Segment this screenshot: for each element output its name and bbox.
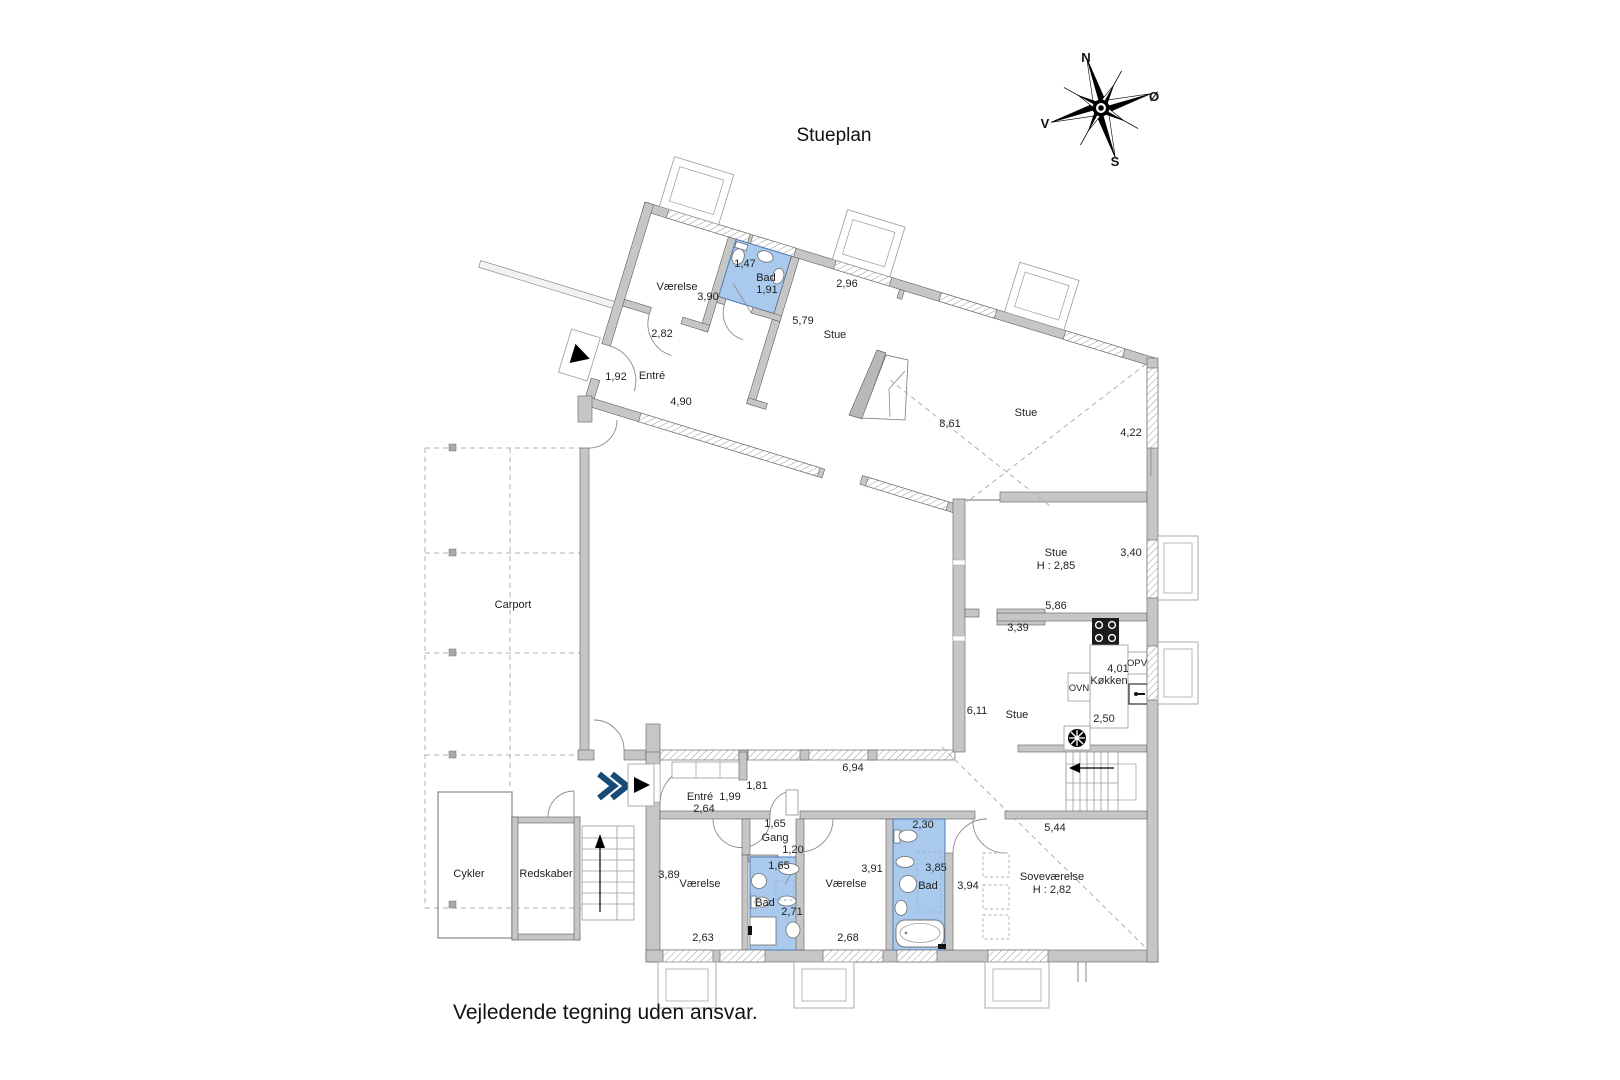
plan-label: Køkken: [1090, 675, 1127, 687]
compass-rose: N Ø S V: [1037, 44, 1166, 173]
plan-label: Bad: [755, 897, 775, 909]
plan-label: Cykler: [453, 868, 485, 880]
carport-posts: [449, 444, 456, 908]
stove-icon: [1064, 726, 1090, 750]
compass-north-label: N: [1081, 50, 1090, 65]
plan-label: Stue: [1015, 407, 1038, 419]
plan-label: Stue: [824, 329, 847, 341]
plan-label: 1,20: [782, 844, 803, 856]
closet-icon: [672, 762, 742, 778]
plan-label: 4,01: [1107, 663, 1128, 675]
compass-south-label: S: [1111, 154, 1120, 169]
plan-label: 2,64: [693, 803, 714, 815]
central-section: [578, 350, 1148, 948]
plan-label: H : 2,85: [1037, 560, 1076, 572]
sink-icon: [896, 857, 914, 868]
plan-label: 3,94: [957, 880, 978, 892]
window-box-icon: [1158, 536, 1198, 704]
plan-label: 1,65: [764, 818, 785, 830]
plan-label: 1,81: [746, 780, 767, 792]
plan-label: Værelse: [680, 878, 721, 890]
plan-label: OPV: [1127, 658, 1148, 669]
plan-label: 3,91: [861, 863, 882, 875]
plan-label: 2,50: [1093, 713, 1114, 725]
stairs-exterior: [582, 826, 634, 920]
plan-label: 3,85: [925, 862, 946, 874]
toilet-icon: [786, 922, 800, 938]
floorplan-page: N Ø S V Stueplan Vejledende tegning uden…: [0, 0, 1620, 1080]
sink-icon: [895, 901, 907, 916]
plan-label: Bad: [756, 272, 776, 284]
plan-label: Værelse: [657, 281, 698, 293]
plan-label: Entré: [639, 370, 665, 382]
fireplace-icon: [849, 350, 908, 420]
plan-label: Entré: [687, 791, 713, 803]
plan-label: 3,90: [697, 291, 718, 303]
basin-icon: [900, 876, 917, 893]
page-title: Stueplan: [796, 125, 871, 146]
plan-label: 6,94: [842, 762, 863, 774]
plan-label: 2,68: [837, 932, 858, 944]
entrance-chevron-icon: [599, 774, 627, 798]
plan-label: Bad: [918, 880, 938, 892]
plan-label: 3,89: [658, 869, 679, 881]
toilet-icon: [894, 830, 917, 843]
bike-shed: [438, 792, 512, 938]
plan-label: Carport: [495, 599, 532, 611]
plan-label: 4,22: [1120, 427, 1141, 439]
plan-label: 2,82: [651, 328, 672, 340]
plan-label: 5,79: [792, 315, 813, 327]
carport-area: [425, 444, 581, 908]
plan-label: Soveværelse: [1020, 871, 1084, 883]
floorplan-drawing: N Ø S V Stueplan Vejledende tegning uden…: [0, 0, 1620, 1080]
tool-shed: [512, 791, 580, 940]
plan-label: 4,90: [670, 396, 691, 408]
shower-icon: [750, 917, 776, 945]
disclaimer-text: Vejledende tegning uden ansvar.: [453, 1001, 758, 1024]
plan-label: Stue: [1045, 547, 1068, 559]
plan-label: Gang: [762, 832, 789, 844]
plan-label: 1,92: [605, 371, 626, 383]
plan-label: Værelse: [826, 878, 867, 890]
compass-west-label: V: [1041, 116, 1050, 131]
plan-label: Redskaber: [519, 868, 573, 880]
plan-label: 5,44: [1044, 822, 1065, 834]
plan-label: 8,61: [939, 418, 960, 430]
sink-icon: [778, 896, 796, 906]
plan-label: 3,39: [1007, 622, 1028, 634]
plan-label: OVN: [1069, 683, 1090, 694]
cooktop-icon: [1092, 618, 1119, 645]
plan-label: 5,86: [1045, 600, 1066, 612]
kitchen-sink-icon: [1129, 684, 1148, 704]
plan-label: 1,47: [734, 258, 755, 270]
compass-east-label: Ø: [1149, 89, 1159, 104]
plan-label: 2,71: [781, 906, 802, 918]
plan-label: 6,11: [967, 705, 988, 717]
annex-left: [438, 791, 634, 940]
bathtub-icon: [896, 920, 944, 947]
plan-label: 2,96: [836, 278, 857, 290]
plan-label: 2,30: [912, 819, 933, 831]
plan-label: 1,99: [719, 791, 740, 803]
plan-label: 1,91: [756, 284, 777, 296]
plan-label: 1,65: [768, 860, 789, 872]
plan-label: 2,63: [692, 932, 713, 944]
stairs-interior: [1066, 752, 1136, 815]
plan-label: H : 2,82: [1033, 884, 1072, 896]
basin-icon: [752, 874, 767, 889]
plan-label: 3,40: [1120, 547, 1141, 559]
door-leaf: [770, 790, 798, 815]
plan-label: Stue: [1006, 709, 1029, 721]
wardrobe-dashed: [983, 853, 1009, 939]
